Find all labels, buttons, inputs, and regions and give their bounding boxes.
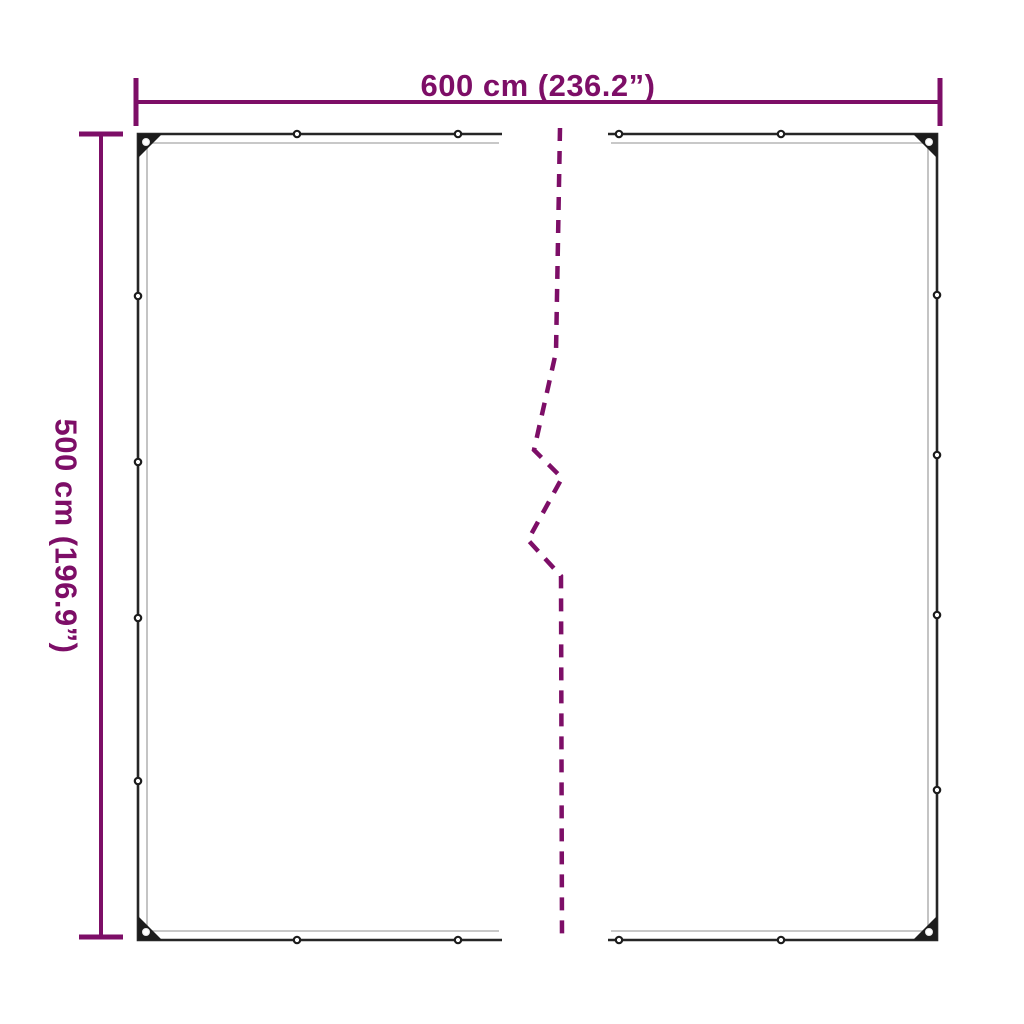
corner-reinforcement-bottom-left [138,916,162,940]
corner-eyelet [926,139,933,146]
corner-eyelet [926,929,933,936]
tarp-left-outline [138,134,502,940]
grommet [934,292,940,298]
corner-reinforcement-top-right [913,134,937,158]
grommet [135,459,141,465]
width-dimension-label: 600 cm (236.2”) [421,68,656,103]
grommet [294,937,300,943]
grommet [135,778,141,784]
tarp-right-panel [608,131,940,943]
grommet [135,615,141,621]
break-line [528,128,562,938]
grommet [616,937,622,943]
grommet [934,612,940,618]
width-dimension: 600 cm (236.2”) [135,68,941,126]
tarp-right-outline [608,134,937,940]
tarp-left-hem-line [147,143,499,931]
grommet [934,787,940,793]
grommet [616,131,622,137]
grommet [455,937,461,943]
grommet [778,937,784,943]
grommet [135,293,141,299]
corner-eyelet [143,929,150,936]
grommet [455,131,461,137]
diagram-svg: 600 cm (236.2”) 500 cm (196.9”) [0,0,1024,1024]
corner-eyelet [143,139,150,146]
corner-reinforcement-top-left [138,134,162,158]
height-dimension: 500 cm (196.9”) [49,133,124,938]
grommet [934,452,940,458]
product-dimension-diagram: 600 cm (236.2”) 500 cm (196.9”) [0,0,1024,1024]
grommet [778,131,784,137]
corner-reinforcement-bottom-right [913,916,937,940]
tarp-left-panel [135,131,502,943]
tarp-right-hem-line [611,143,928,931]
height-dimension-label: 500 cm (196.9”) [49,419,84,654]
grommet [294,131,300,137]
